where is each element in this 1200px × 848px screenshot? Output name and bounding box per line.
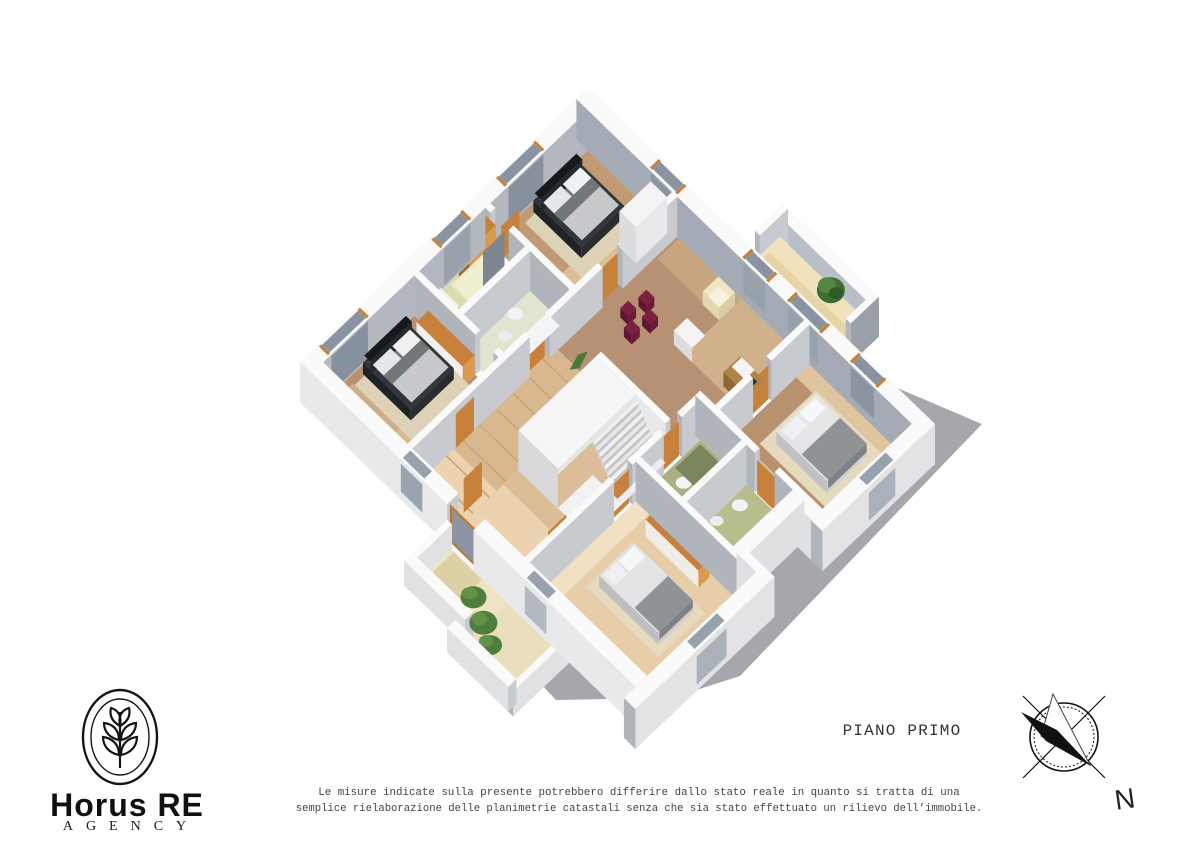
svg-text:PIANO PRIMO: PIANO PRIMO bbox=[843, 722, 962, 740]
svg-text:semplice rielaborazione delle: semplice rielaborazione delle planimetri… bbox=[296, 803, 983, 815]
svg-text:Le misure indicate sulla prese: Le misure indicate sulla presente potreb… bbox=[318, 787, 960, 799]
svg-text:N: N bbox=[1113, 782, 1137, 816]
svg-text:AGENCY: AGENCY bbox=[63, 819, 199, 834]
svg-text:Horus RE: Horus RE bbox=[50, 787, 204, 823]
